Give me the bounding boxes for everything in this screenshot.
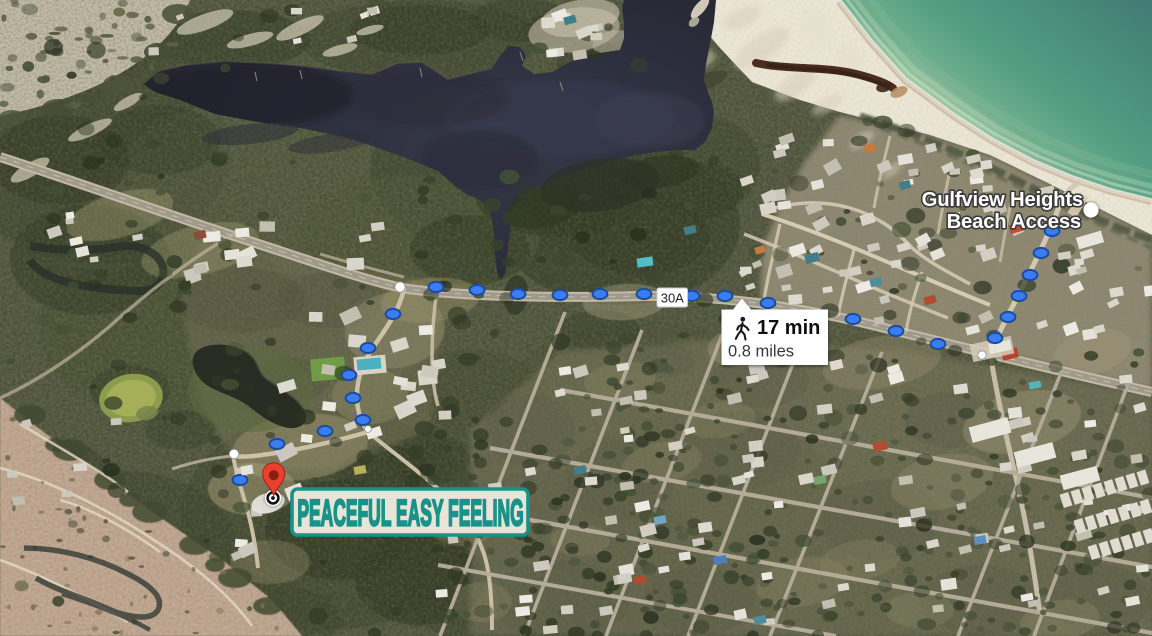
svg-text:30A: 30A: [661, 290, 684, 305]
svg-text:Gulfview Heights: Gulfview Heights: [922, 189, 1083, 211]
svg-text:17 min: 17 min: [757, 317, 820, 339]
svg-text:Beach Access: Beach Access: [947, 211, 1081, 233]
svg-text:PEACEFUL EASY FEELING: PEACEFUL EASY FEELING: [297, 494, 523, 535]
svg-text:0.8 miles: 0.8 miles: [728, 343, 794, 361]
